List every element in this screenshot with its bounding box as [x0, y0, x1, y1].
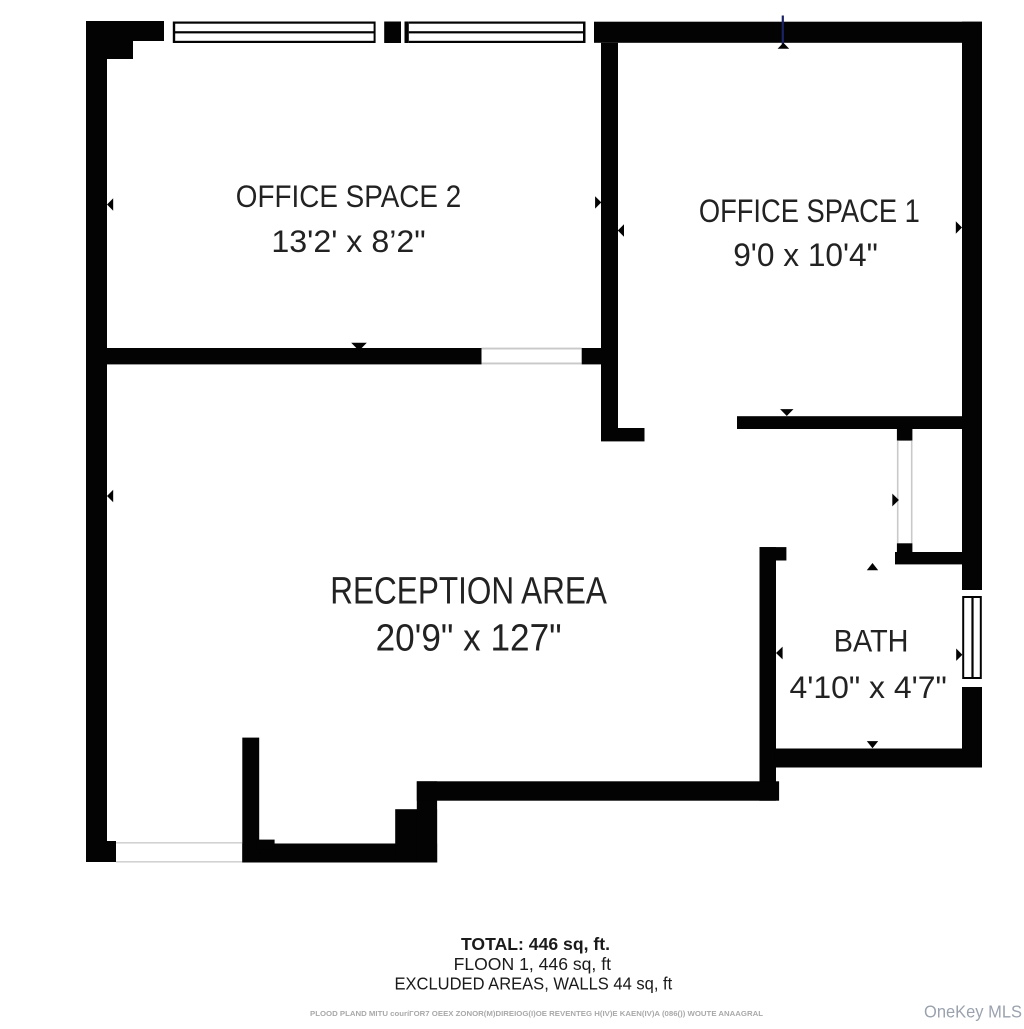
svg-text:EXCLUDED AREAS, WALLS 44 sq, f: EXCLUDED AREAS, WALLS 44 sq, ft [395, 974, 673, 994]
svg-text:BATH: BATH [834, 622, 909, 658]
svg-text:13'2' x 8’2": 13'2' x 8’2" [271, 223, 425, 259]
svg-text:RECEPTION AREA: RECEPTION AREA [330, 571, 607, 613]
svg-text:OFFICE SPACE 1: OFFICE SPACE 1 [699, 193, 920, 229]
svg-text:OFFICE SPACE 2: OFFICE SPACE 2 [236, 178, 461, 214]
svg-text:9'0 x 10'4": 9'0 x 10'4" [733, 237, 878, 273]
svg-text:TOTAL: 446 sq, ft.: TOTAL: 446 sq, ft. [461, 934, 610, 954]
svg-text:20'9" x 127": 20'9" x 127" [376, 618, 562, 660]
svg-text:4'10" x 4'7": 4'10" x 4'7" [790, 669, 947, 705]
svg-text:OneKey MLS: OneKey MLS [924, 1002, 1022, 1022]
svg-text:FLOON 1, 446 sq, ft: FLOON 1, 446 sq, ft [454, 954, 612, 974]
svg-text:PLOOD PLAND MITU couríГOR7 OEE: PLOOD PLAND MITU couríГOR7 OEEX ZONOR(M)… [310, 1009, 763, 1018]
